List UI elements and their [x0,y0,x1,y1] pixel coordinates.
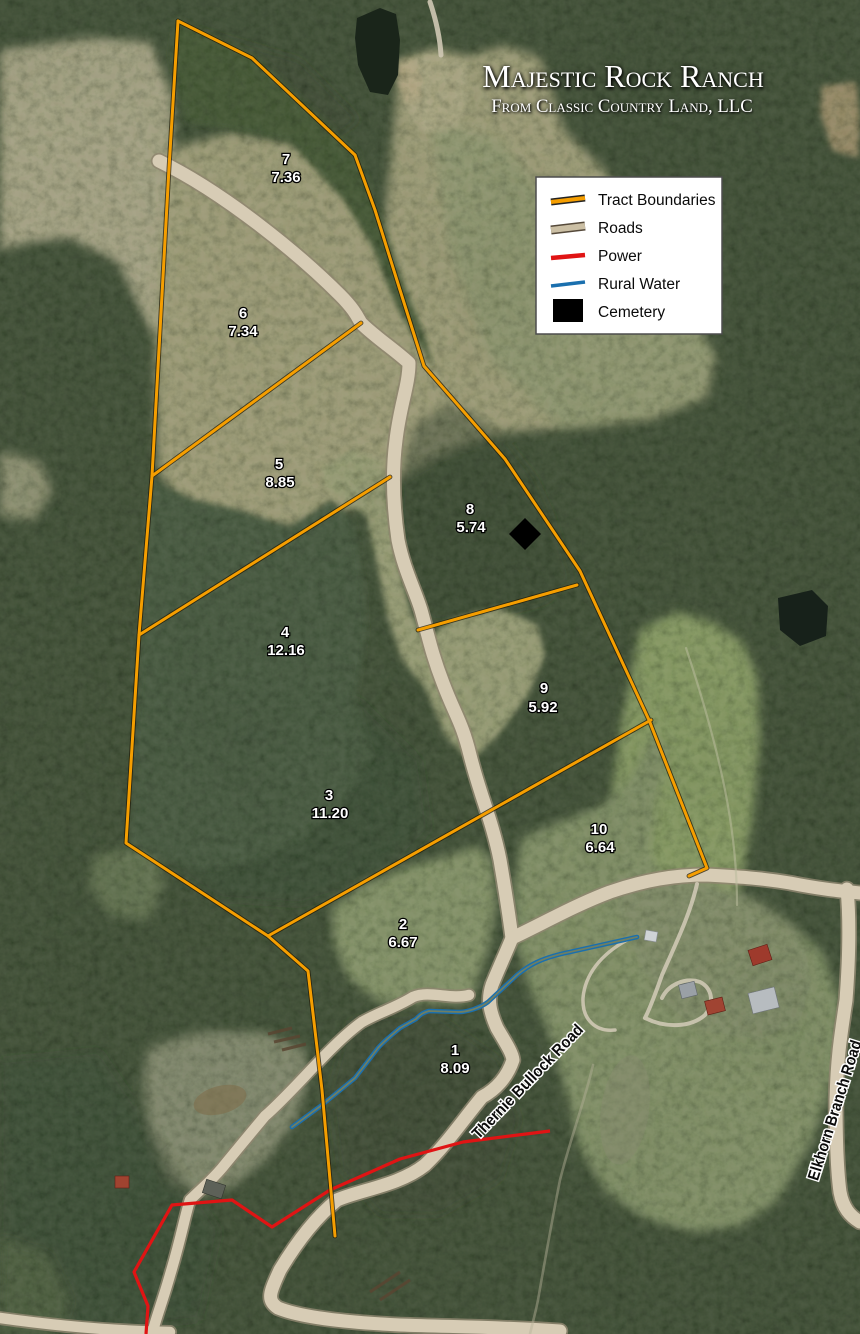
svg-text:9: 9 [540,680,548,697]
svg-text:5.74: 5.74 [456,519,486,536]
svg-text:Roads: Roads [598,220,643,237]
svg-text:7: 7 [282,151,290,168]
svg-text:11.20: 11.20 [312,805,349,822]
svg-text:Majestic Rock Ranch: Majestic Rock Ranch [482,58,764,94]
svg-text:6.64: 6.64 [585,839,615,856]
svg-text:Power: Power [598,248,642,265]
svg-text:8.85: 8.85 [265,474,294,491]
svg-text:7.36: 7.36 [271,169,300,186]
svg-text:Cemetery: Cemetery [598,304,665,321]
svg-text:Rural Water: Rural Water [598,276,680,293]
svg-text:5: 5 [275,456,283,473]
svg-text:6.67: 6.67 [388,934,417,951]
svg-text:8.09: 8.09 [440,1060,469,1077]
svg-text:10: 10 [591,821,608,838]
svg-text:8: 8 [466,501,474,518]
svg-text:7.34: 7.34 [228,323,258,340]
svg-text:12.16: 12.16 [267,642,305,659]
svg-text:4: 4 [281,624,290,641]
svg-text:5.92: 5.92 [528,699,557,716]
svg-text:From Classic Country Land, LLC: From Classic Country Land, LLC [491,96,752,117]
svg-text:2: 2 [399,916,407,933]
svg-text:1: 1 [451,1042,459,1059]
svg-text:3: 3 [325,787,333,804]
svg-text:Tract Boundaries: Tract Boundaries [598,192,716,209]
svg-text:6: 6 [239,305,247,322]
